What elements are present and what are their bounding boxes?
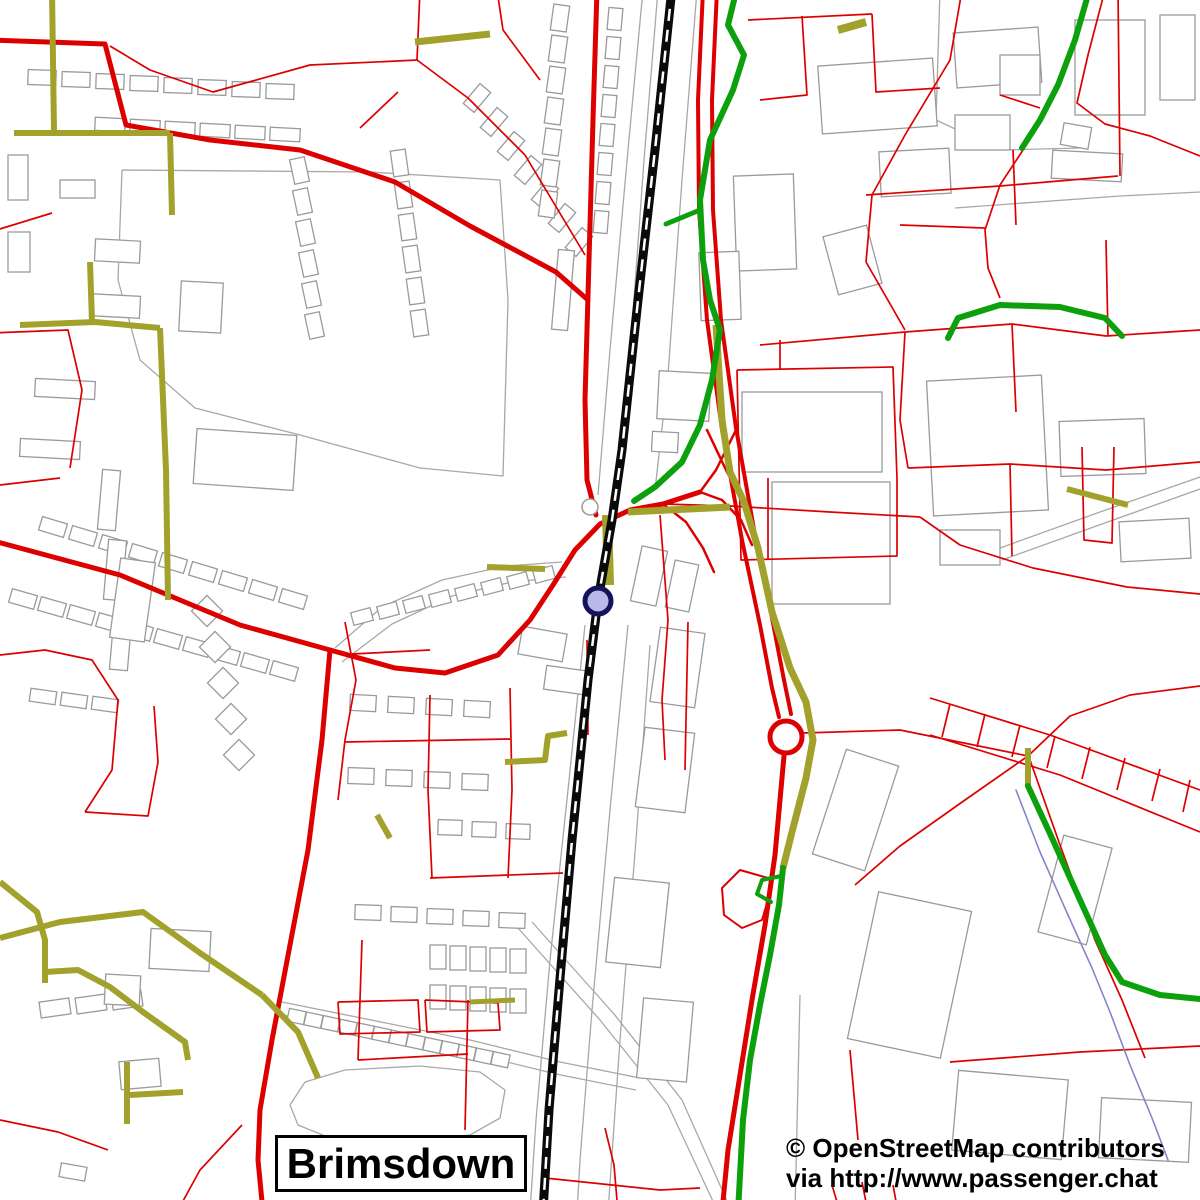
building-outline	[355, 905, 382, 921]
building-outline	[812, 749, 898, 871]
building-outline	[94, 239, 140, 263]
building-outline	[386, 770, 413, 787]
building-outline	[299, 250, 319, 278]
building-outline	[438, 820, 463, 836]
building-outline	[823, 225, 882, 295]
building-outline	[472, 822, 497, 838]
building-outline	[377, 602, 400, 620]
building-outline	[450, 946, 466, 970]
building-outline	[95, 117, 126, 132]
building-outline	[544, 97, 563, 125]
building-outline	[650, 627, 705, 708]
building-outline	[605, 36, 621, 59]
building-outline	[423, 1037, 442, 1053]
building-outline	[391, 907, 418, 923]
building-outline	[305, 312, 325, 340]
building-outline	[60, 692, 88, 708]
building-outline	[606, 877, 670, 967]
building-outline	[427, 909, 454, 925]
building-outline	[249, 580, 278, 601]
building-outline	[406, 277, 424, 305]
building-outline	[603, 65, 619, 88]
building-outline	[189, 562, 218, 583]
building-outline	[270, 127, 301, 142]
building-outline	[60, 180, 95, 198]
building-outline	[348, 768, 375, 785]
building-outline	[89, 294, 140, 319]
building-outline	[410, 309, 428, 337]
building-outline	[480, 108, 507, 137]
map-svg[interactable]	[0, 0, 1200, 1200]
building-outline	[507, 572, 530, 590]
building-outline	[540, 159, 559, 187]
building-outline	[29, 688, 57, 704]
building-outline	[847, 892, 971, 1058]
building-outline	[462, 774, 489, 791]
building-outline	[595, 181, 611, 204]
building-outline	[1160, 15, 1195, 100]
building-outline	[772, 482, 890, 604]
attribution-line-1: © OpenStreetMap contributors	[786, 1133, 1196, 1163]
place-label-text: Brimsdown	[287, 1140, 516, 1188]
building-outline	[1000, 55, 1040, 95]
station-marker[interactable]	[585, 588, 611, 614]
building-outline	[9, 589, 38, 610]
building-outline	[430, 985, 446, 1009]
building-outline	[552, 249, 575, 330]
building-outline	[8, 232, 30, 272]
building-outline	[193, 429, 297, 491]
building-outline	[464, 700, 491, 717]
building-outline	[67, 605, 96, 626]
building-outline	[390, 149, 408, 177]
building-outline	[630, 546, 667, 606]
building-outline	[499, 913, 526, 929]
building-outline	[388, 696, 415, 713]
building-outline	[232, 82, 261, 98]
building-outline	[955, 115, 1010, 150]
building-outline	[270, 661, 299, 682]
building-outline	[927, 375, 1049, 516]
building-outline	[593, 210, 609, 233]
building-outline	[159, 553, 188, 574]
building-outline	[463, 911, 490, 927]
building-outline	[455, 584, 478, 602]
building-outline	[154, 629, 183, 650]
building-outline	[235, 125, 266, 140]
building-outline	[429, 590, 452, 608]
building-outline	[491, 1052, 510, 1068]
building-outline	[450, 986, 466, 1010]
building-outline	[601, 94, 617, 117]
building-outline	[279, 589, 308, 610]
building-outline	[510, 949, 526, 973]
building-outline	[293, 188, 313, 216]
building-outline	[430, 945, 446, 969]
building-outline	[215, 703, 246, 734]
building-outline	[8, 155, 28, 200]
building-outline	[62, 72, 91, 88]
building-outline	[550, 4, 569, 32]
building-outline	[38, 597, 67, 618]
roundabout-marker	[770, 721, 802, 753]
building-outline	[402, 245, 420, 273]
map-canvas[interactable]: Brimsdown © OpenStreetMap contributors v…	[0, 0, 1200, 1200]
building-outline	[398, 213, 416, 241]
layer-markers	[582, 499, 802, 753]
building-outline	[302, 281, 322, 309]
building-outline	[91, 696, 119, 712]
building-outline	[733, 174, 796, 271]
building-outline	[1060, 123, 1091, 150]
building-outline	[39, 998, 71, 1018]
building-outline	[818, 58, 937, 134]
map-attribution: © OpenStreetMap contributors via http://…	[786, 1133, 1196, 1193]
building-outline	[497, 132, 524, 161]
building-outline	[200, 123, 231, 138]
building-outline	[59, 1163, 87, 1181]
building-outline	[266, 84, 295, 100]
building-outline	[742, 392, 882, 472]
attribution-line-2: via http://www.passenger.chat	[786, 1163, 1196, 1193]
building-outline	[651, 431, 678, 452]
building-outline	[75, 994, 107, 1014]
building-outline	[544, 665, 587, 694]
building-outline	[241, 653, 270, 674]
building-outline	[372, 1026, 391, 1042]
building-outline	[474, 1048, 493, 1064]
building-outline	[179, 281, 224, 333]
building-outline	[39, 517, 68, 538]
building-outline	[599, 123, 615, 146]
building-outline	[96, 74, 125, 90]
building-outline	[296, 219, 316, 247]
building-outline	[406, 1034, 425, 1050]
building-outline	[548, 35, 567, 63]
building-outline	[207, 667, 238, 698]
building-outline	[490, 948, 506, 972]
building-outline	[355, 1023, 374, 1039]
building-outline	[481, 578, 504, 596]
building-outline	[97, 469, 120, 530]
building-outline	[637, 998, 694, 1082]
building-outline	[321, 1016, 340, 1032]
building-outline	[219, 571, 248, 592]
building-outline	[518, 626, 567, 661]
building-outline	[597, 152, 613, 175]
building-outline	[290, 157, 310, 185]
building-outline	[546, 66, 565, 94]
building-outline	[470, 947, 486, 971]
place-label: Brimsdown	[275, 1135, 527, 1192]
building-outline	[35, 378, 96, 399]
building-outline	[1119, 518, 1191, 562]
building-outline	[223, 739, 254, 770]
building-outline	[351, 608, 374, 626]
building-outline	[607, 7, 623, 30]
building-outline	[542, 128, 561, 156]
building-outline	[130, 76, 159, 92]
minor-circle-feature	[582, 499, 598, 515]
building-outline	[69, 526, 98, 547]
building-outline	[304, 1012, 323, 1028]
building-outline	[665, 560, 698, 612]
